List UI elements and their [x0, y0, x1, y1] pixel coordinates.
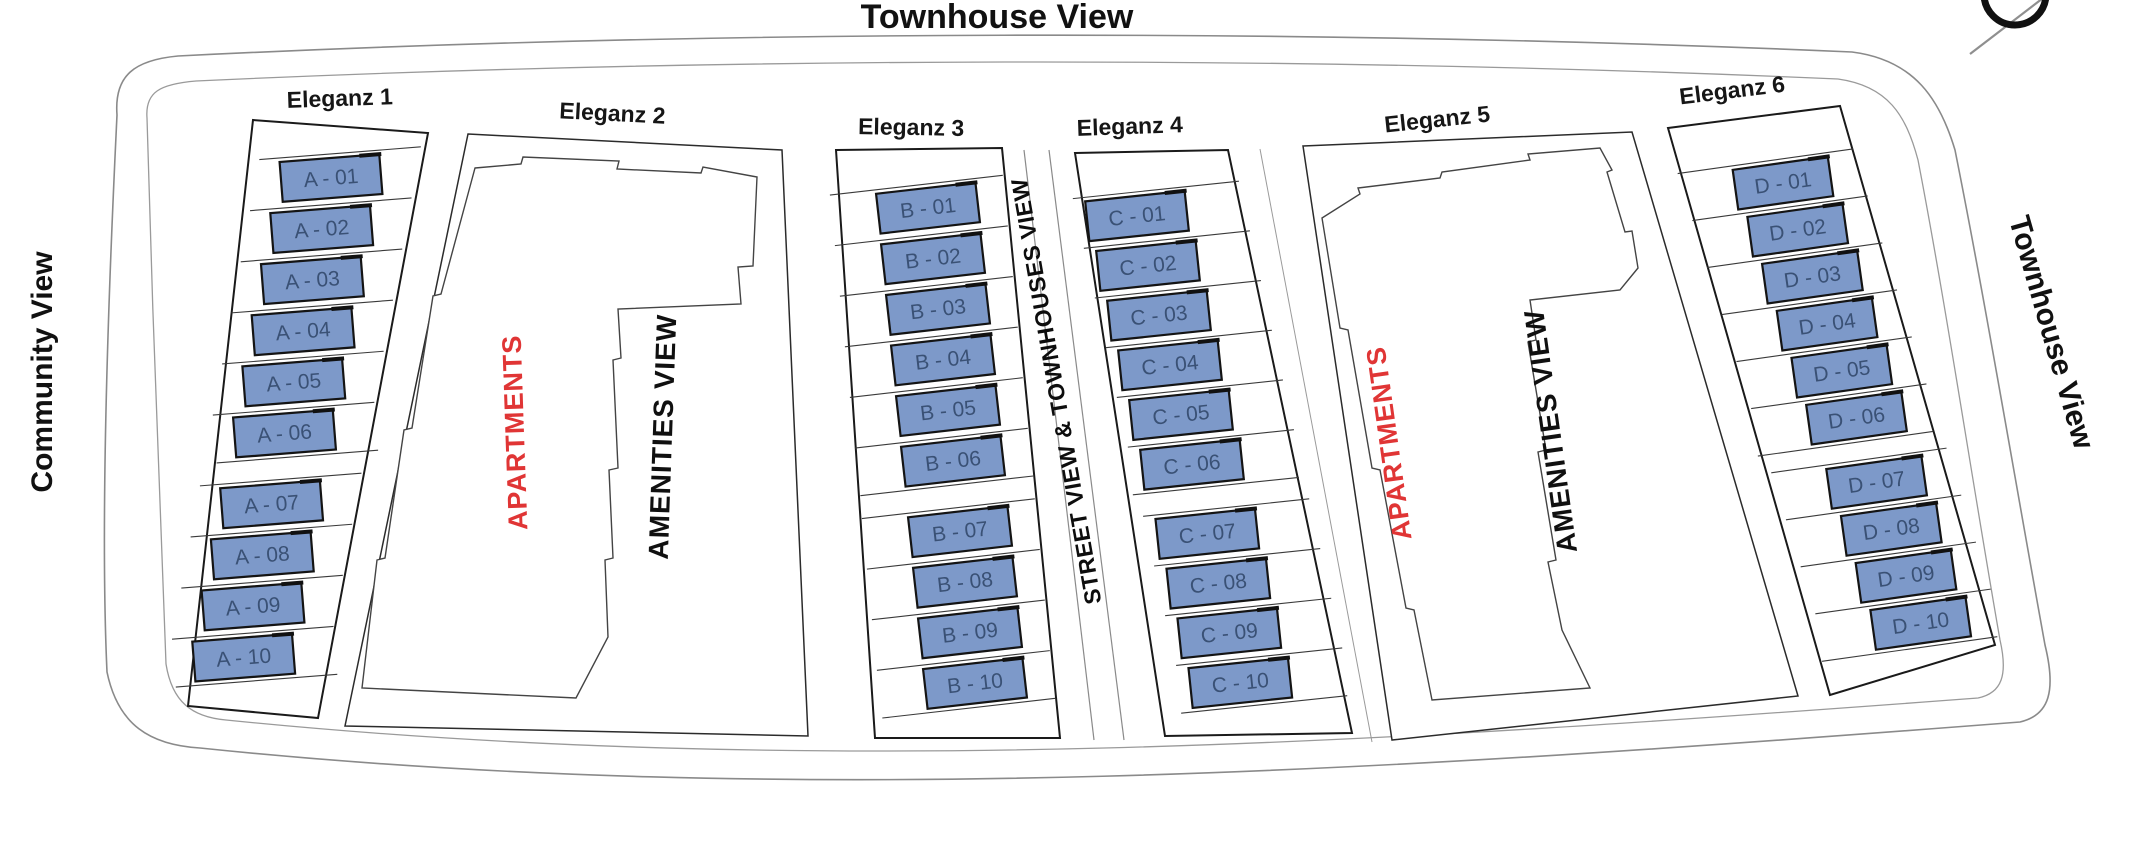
unit-number-label: A - 07 — [243, 491, 300, 518]
unit-number-label: A - 02 — [293, 216, 350, 243]
section-label-eleganz-6: Eleganz 6 — [1678, 71, 1786, 110]
site-plan-svg: A - 01A - 02A - 03A - 04A - 05A - 06A - … — [0, 0, 2132, 844]
section-label-eleganz-5: Eleganz 5 — [1383, 101, 1491, 138]
unit-number-label: A - 09 — [225, 593, 282, 620]
unit-number-label: A - 10 — [215, 644, 272, 671]
section-label-eleganz-1: Eleganz 1 — [286, 83, 393, 113]
site-plan: A - 01A - 02A - 03A - 04A - 05A - 06A - … — [0, 0, 2132, 844]
section-label-eleganz-4: Eleganz 4 — [1076, 111, 1183, 141]
unit-number-label: A - 08 — [234, 542, 291, 569]
unit-number-label: A - 06 — [256, 420, 313, 447]
plan-title: Townhouse View — [861, 0, 1134, 36]
community-view-label: Community View — [26, 251, 59, 493]
compass-north-icon — [1970, 0, 2064, 54]
section-label-eleganz-3: Eleganz 3 — [858, 113, 965, 141]
unit-number-label: A - 05 — [266, 369, 323, 396]
unit-number-label: A - 01 — [303, 165, 360, 192]
unit-number-label: A - 03 — [284, 267, 341, 294]
townhouse-view-label-right: Townhouse View — [2002, 212, 2100, 453]
section-label-eleganz-2: Eleganz 2 — [559, 97, 666, 129]
unit-number-label: A - 04 — [275, 318, 332, 345]
